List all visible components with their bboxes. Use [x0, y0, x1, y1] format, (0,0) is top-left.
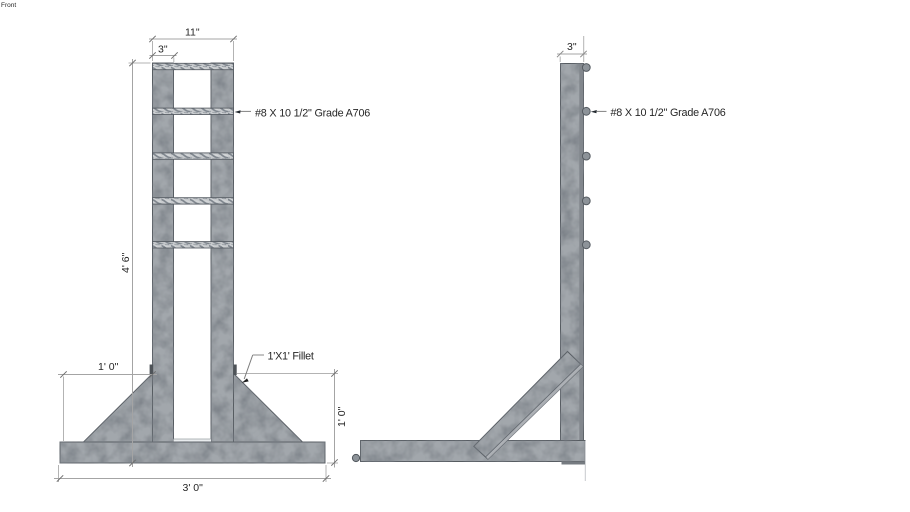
- svg-text:4' 6": 4' 6": [120, 252, 132, 273]
- svg-text:1' 0": 1' 0": [98, 361, 119, 373]
- svg-text:#8 X 10 1/2" Grade A706: #8 X 10 1/2" Grade A706: [611, 107, 726, 119]
- svg-text:1'X1' Fillet: 1'X1' Fillet: [268, 351, 314, 363]
- svg-text:3": 3": [567, 41, 577, 53]
- svg-text:3' 0": 3' 0": [183, 482, 204, 494]
- svg-text:#8 X 10 1/2" Grade A706: #8 X 10 1/2" Grade A706: [255, 108, 370, 120]
- svg-text:3": 3": [158, 44, 168, 56]
- svg-text:1' 0": 1' 0": [336, 406, 348, 427]
- svg-text:11": 11": [185, 27, 200, 39]
- svg-text:Front: Front: [1, 2, 16, 9]
